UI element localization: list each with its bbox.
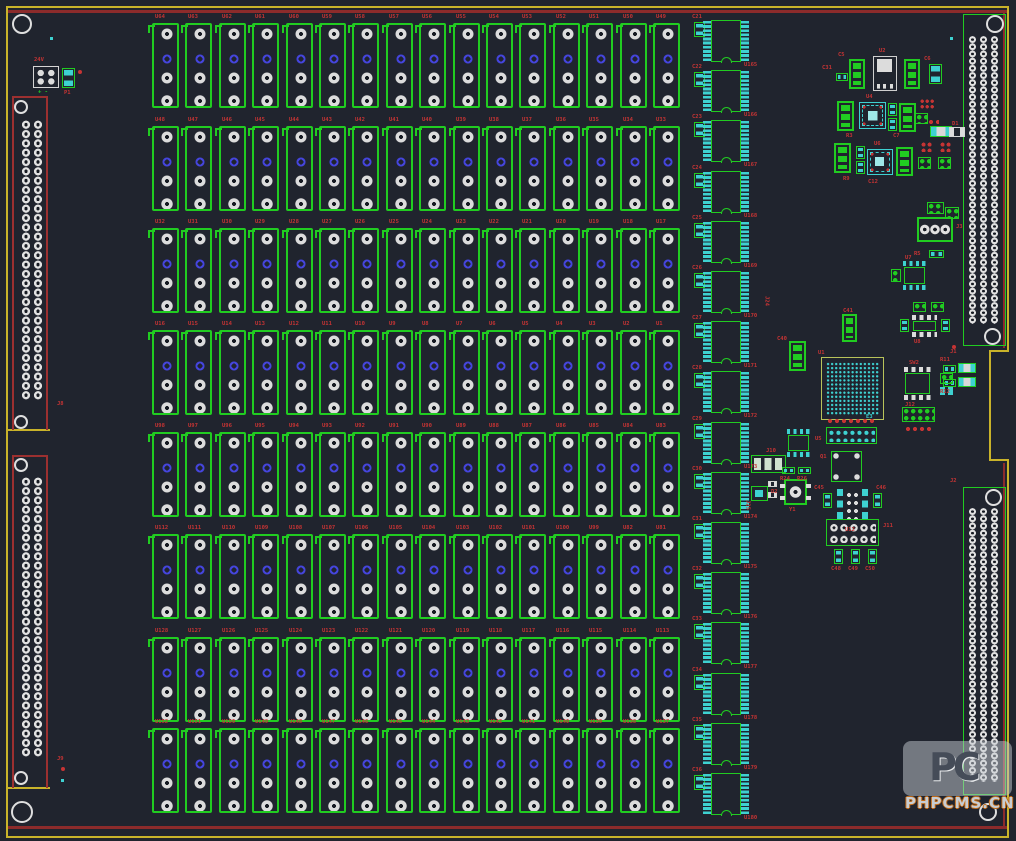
relay-ref-label: U127: [188, 629, 201, 635]
relay-ref-label: U117: [522, 629, 535, 635]
relay-ref-label: U115: [589, 629, 602, 635]
relay-ref-label: U143: [456, 720, 469, 726]
silkscreen-label: D2: [771, 490, 778, 496]
relay-ref-label: U41: [389, 118, 399, 124]
relay-ref-label: U22: [489, 220, 499, 226]
relay-ref-label: U14: [222, 322, 232, 328]
relay-ref-label: U23: [456, 220, 466, 226]
relay-ref-label: U19: [589, 220, 599, 226]
cap-ref-label: C29: [692, 417, 702, 423]
relay-ref-label: U25: [389, 220, 399, 226]
relay-ref-label: U94: [289, 424, 299, 430]
relay-ref-label: U21: [522, 220, 532, 226]
relay-ref-label: U35: [589, 118, 599, 124]
relay-ref-label: U87: [522, 424, 532, 430]
silkscreen-text-layer: U64U63U62U61U60U59U58U57U56U55U54U53U52U…: [0, 0, 1016, 841]
silkscreen-label: J11: [883, 524, 893, 530]
silkscreen-label: J8: [57, 402, 64, 408]
relay-ref-label: U7: [456, 322, 463, 328]
silkscreen-label: C5: [838, 53, 845, 59]
cap-ref-label: C30: [692, 467, 702, 473]
silkscreen-label: U5: [815, 437, 822, 443]
relay-ref-label: U52: [556, 15, 566, 21]
relay-ref-label: U15: [188, 322, 198, 328]
relay-ref-label: U82: [623, 526, 633, 532]
relay-ref-label: U27: [322, 220, 332, 226]
silkscreen-label: U4: [866, 95, 873, 101]
silkscreen-label: C49: [848, 567, 858, 573]
relay-ref-label: U26: [355, 220, 365, 226]
relay-ref-label: U111: [188, 526, 201, 532]
relay-ref-label: U99: [589, 526, 599, 532]
silkscreen-label: 24V: [34, 58, 44, 64]
relay-ref-label: U139: [589, 720, 602, 726]
silkscreen-label: R11: [940, 358, 950, 364]
silkscreen-label: U8: [914, 340, 921, 346]
relay-ref-label: U85: [589, 424, 599, 430]
pcb-canvas: U64U63U62U61U60U59U58U57U56U55U54U53U52U…: [0, 0, 1016, 841]
relay-ref-label: U146: [355, 720, 368, 726]
ic-ref-label: U174: [744, 515, 757, 521]
cap-ref-label: C34: [692, 668, 702, 674]
relay-ref-label: U40: [422, 118, 432, 124]
silkscreen-label: J24: [763, 296, 769, 306]
relay-ref-label: U93: [322, 424, 332, 430]
relay-ref-label: U58: [355, 15, 365, 21]
relay-ref-label: U110: [222, 526, 235, 532]
cap-ref-label: C24: [692, 166, 702, 172]
relay-ref-label: U36: [556, 118, 566, 124]
relay-ref-label: U104: [422, 526, 435, 532]
silkscreen-label: J10: [766, 449, 776, 455]
relay-ref-label: U126: [222, 629, 235, 635]
relay-ref-label: U8: [422, 322, 429, 328]
relay-ref-label: U29: [255, 220, 265, 226]
silkscreen-label: C40: [777, 337, 787, 343]
relay-ref-label: U137: [656, 720, 669, 726]
relay-ref-label: U118: [489, 629, 502, 635]
silkscreen-label: E3: [866, 415, 873, 421]
cap-ref-label: C26: [692, 266, 702, 272]
silkscreen-label: R5: [914, 252, 921, 258]
relay-ref-label: U61: [255, 15, 265, 21]
relay-ref-label: U92: [355, 424, 365, 430]
silkscreen-label: + -: [38, 90, 48, 96]
silkscreen-label: D1: [952, 122, 959, 128]
ic-ref-label: U177: [744, 665, 757, 671]
relay-ref-label: U31: [188, 220, 198, 226]
silkscreen-label: J2: [950, 479, 957, 485]
relay-ref-label: U95: [255, 424, 265, 430]
relay-ref-label: U50: [623, 15, 633, 21]
silkscreen-label: R9: [843, 177, 850, 183]
relay-ref-label: U2: [623, 322, 630, 328]
silkscreen-label: C6: [924, 57, 931, 63]
relay-ref-label: U147: [322, 720, 335, 726]
relay-ref-label: U12: [289, 322, 299, 328]
relay-ref-label: U56: [422, 15, 432, 21]
silkscreen-label: R12: [940, 390, 950, 396]
relay-ref-label: U105: [389, 526, 402, 532]
silkscreen-label: C48: [831, 567, 841, 573]
cap-ref-label: C36: [692, 768, 702, 774]
relay-ref-label: U140: [556, 720, 569, 726]
silkscreen-label: U12: [845, 528, 855, 534]
relay-ref-label: U47: [188, 118, 198, 124]
ic-ref-label: U179: [744, 766, 757, 772]
cap-ref-label: C23: [692, 115, 702, 121]
ic-ref-label: U178: [744, 716, 757, 722]
relay-ref-label: U144: [422, 720, 435, 726]
relay-ref-label: U100: [556, 526, 569, 532]
relay-ref-label: U57: [389, 15, 399, 21]
relay-ref-label: U149: [255, 720, 268, 726]
ic-ref-label: U171: [744, 364, 757, 370]
cap-ref-label: C32: [692, 567, 702, 573]
silkscreen-label: U7: [905, 256, 912, 262]
relay-ref-label: U151: [188, 720, 201, 726]
relay-ref-label: U51: [589, 15, 599, 21]
relay-ref-label: U120: [422, 629, 435, 635]
relay-ref-label: U91: [389, 424, 399, 430]
silkscreen-label: U2: [879, 49, 886, 55]
relay-ref-label: U34: [623, 118, 633, 124]
relay-ref-label: U37: [522, 118, 532, 124]
relay-ref-label: U119: [456, 629, 469, 635]
cap-ref-label: C35: [692, 718, 702, 724]
silkscreen-label: P1: [64, 91, 71, 97]
relay-ref-label: U152: [155, 720, 168, 726]
relay-ref-label: U6: [489, 322, 496, 328]
cap-ref-label: C25: [692, 216, 702, 222]
relay-ref-label: U60: [289, 15, 299, 21]
silkscreen-label: Y1: [789, 508, 796, 514]
silkscreen-label: U6: [874, 142, 881, 148]
relay-ref-label: U16: [155, 322, 165, 328]
relay-ref-label: U46: [222, 118, 232, 124]
relay-ref-label: U89: [456, 424, 466, 430]
relay-ref-label: U54: [489, 15, 499, 21]
watermark: PC: [903, 741, 1012, 796]
relay-ref-label: U64: [155, 15, 165, 21]
relay-ref-label: U114: [623, 629, 636, 635]
relay-ref-label: U55: [456, 15, 466, 21]
relay-ref-label: U128: [155, 629, 168, 635]
silkscreen-label: J1: [950, 350, 957, 356]
relay-ref-label: U59: [322, 15, 332, 21]
relay-ref-label: U17: [656, 220, 666, 226]
silkscreen-label: C50: [865, 567, 875, 573]
ic-ref-label: U175: [744, 565, 757, 571]
silkscreen-label: C46: [876, 486, 886, 492]
relay-ref-label: U86: [556, 424, 566, 430]
relay-ref-label: U9: [389, 322, 396, 328]
ic-ref-label: U176: [744, 615, 757, 621]
ic-ref-label: U166: [744, 113, 757, 119]
relay-ref-label: U49: [656, 15, 666, 21]
cap-ref-label: C21: [692, 15, 702, 21]
silkscreen-label: J25: [744, 500, 750, 510]
relay-ref-label: U109: [255, 526, 268, 532]
relay-ref-label: U101: [522, 526, 535, 532]
relay-ref-label: U88: [489, 424, 499, 430]
relay-ref-label: U1: [656, 322, 663, 328]
relay-ref-label: U138: [623, 720, 636, 726]
cap-ref-label: C27: [692, 316, 702, 322]
cap-ref-label: C22: [692, 65, 702, 71]
watermark-text: PHPCMS.CN: [905, 794, 1015, 812]
relay-ref-label: U32: [155, 220, 165, 226]
silkscreen-label: R3: [846, 134, 853, 140]
relay-ref-label: U124: [289, 629, 302, 635]
ic-ref-label: U172: [744, 414, 757, 420]
relay-ref-label: U121: [389, 629, 402, 635]
relay-ref-label: U103: [456, 526, 469, 532]
relay-ref-label: U107: [322, 526, 335, 532]
relay-ref-label: U13: [255, 322, 265, 328]
relay-ref-label: U39: [456, 118, 466, 124]
relay-ref-label: U83: [656, 424, 666, 430]
relay-ref-label: U98: [155, 424, 165, 430]
relay-ref-label: U102: [489, 526, 502, 532]
relay-ref-label: U43: [322, 118, 332, 124]
relay-ref-label: U150: [222, 720, 235, 726]
silkscreen-label: J12: [905, 403, 915, 409]
relay-ref-label: U96: [222, 424, 232, 430]
silkscreen-label: R26: [797, 477, 807, 483]
relay-ref-label: U90: [422, 424, 432, 430]
relay-ref-label: U28: [289, 220, 299, 226]
silkscreen-label: U1: [818, 351, 825, 357]
relay-ref-label: U5: [522, 322, 529, 328]
ic-ref-label: U170: [744, 314, 757, 320]
relay-ref-label: U11: [322, 322, 332, 328]
relay-ref-label: U24: [422, 220, 432, 226]
relay-ref-label: U97: [188, 424, 198, 430]
relay-ref-label: U145: [389, 720, 402, 726]
relay-ref-label: U141: [522, 720, 535, 726]
relay-ref-label: U84: [623, 424, 633, 430]
relay-ref-label: U81: [656, 526, 666, 532]
relay-ref-label: U42: [355, 118, 365, 124]
ic-ref-label: U167: [744, 163, 757, 169]
relay-ref-label: U45: [255, 118, 265, 124]
silkscreen-label: J3: [956, 225, 963, 231]
ic-ref-label: U180: [744, 816, 757, 822]
relay-ref-label: U33: [656, 118, 666, 124]
cap-ref-label: C31: [692, 517, 702, 523]
relay-ref-label: U106: [355, 526, 368, 532]
silkscreen-label: C7: [893, 134, 900, 140]
relay-ref-label: U18: [623, 220, 633, 226]
relay-ref-label: U53: [522, 15, 532, 21]
cap-ref-label: C33: [692, 617, 702, 623]
ic-ref-label: U165: [744, 63, 757, 69]
watermark-logo: PC: [929, 745, 977, 789]
ic-ref-label: U173: [744, 465, 757, 471]
relay-ref-label: U125: [255, 629, 268, 635]
relay-ref-label: U38: [489, 118, 499, 124]
relay-ref-label: U123: [322, 629, 335, 635]
relay-ref-label: U116: [556, 629, 569, 635]
relay-ref-label: U113: [656, 629, 669, 635]
silkscreen-label: J9: [57, 757, 64, 763]
ic-ref-label: U168: [744, 214, 757, 220]
relay-ref-label: U62: [222, 15, 232, 21]
relay-ref-label: U142: [489, 720, 502, 726]
relay-ref-label: U30: [222, 220, 232, 226]
relay-ref-label: U4: [556, 322, 563, 328]
relay-ref-label: U112: [155, 526, 168, 532]
relay-ref-label: U122: [355, 629, 368, 635]
relay-ref-label: U63: [188, 15, 198, 21]
silkscreen-label: C45: [814, 486, 824, 492]
silkscreen-label: C12: [868, 180, 878, 186]
silkscreen-label: Q1: [820, 455, 827, 461]
silkscreen-label: R24: [780, 477, 790, 483]
relay-ref-label: U10: [355, 322, 365, 328]
silkscreen-label: SW2: [909, 361, 919, 367]
relay-ref-label: U48: [155, 118, 165, 124]
silkscreen-label: C41: [843, 309, 853, 315]
ic-ref-label: U169: [744, 264, 757, 270]
relay-ref-label: U44: [289, 118, 299, 124]
relay-ref-label: U3: [589, 322, 596, 328]
relay-ref-label: U20: [556, 220, 566, 226]
silkscreen-label: C31: [822, 66, 832, 72]
relay-ref-label: U148: [289, 720, 302, 726]
cap-ref-label: C28: [692, 366, 702, 372]
relay-ref-label: U108: [289, 526, 302, 532]
